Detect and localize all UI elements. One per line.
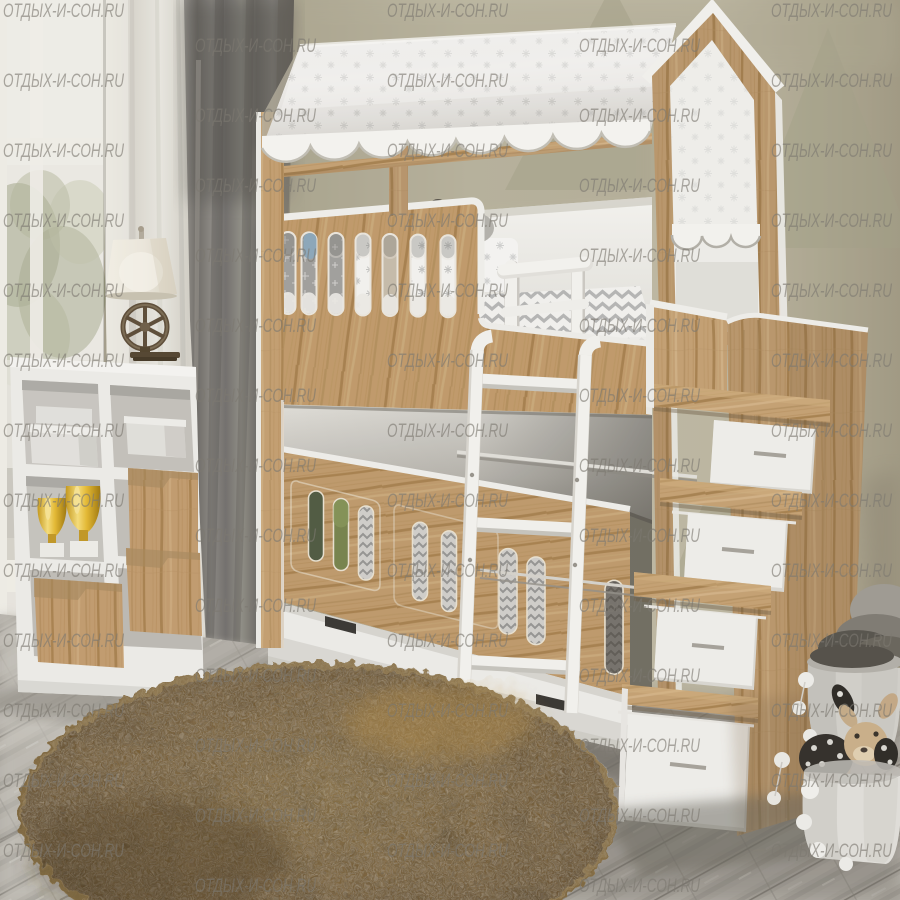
svg-text:ОТДЫХ-И-СОН.RU: ОТДЫХ-И-СОН.RU (3, 701, 124, 722)
svg-text:ОТДЫХ-И-СОН.RU: ОТДЫХ-И-СОН.RU (3, 841, 124, 862)
svg-text:ОТДЫХ-И-СОН.RU: ОТДЫХ-И-СОН.RU (387, 281, 508, 302)
svg-text:ОТДЫХ-И-СОН.RU: ОТДЫХ-И-СОН.RU (579, 876, 700, 897)
svg-text:ОТДЫХ-И-СОН.RU: ОТДЫХ-И-СОН.RU (195, 456, 316, 477)
svg-text:ОТДЫХ-И-СОН.RU: ОТДЫХ-И-СОН.RU (3, 211, 124, 232)
svg-text:ОТДЫХ-И-СОН.RU: ОТДЫХ-И-СОН.RU (579, 456, 700, 477)
svg-text:ОТДЫХ-И-СОН.RU: ОТДЫХ-И-СОН.RU (3, 421, 124, 442)
svg-text:ОТДЫХ-И-СОН.RU: ОТДЫХ-И-СОН.RU (195, 36, 316, 57)
svg-text:ОТДЫХ-И-СОН.RU: ОТДЫХ-И-СОН.RU (3, 141, 124, 162)
svg-text:ОТДЫХ-И-СОН.RU: ОТДЫХ-И-СОН.RU (771, 71, 892, 92)
svg-text:ОТДЫХ-И-СОН.RU: ОТДЫХ-И-СОН.RU (579, 386, 700, 407)
svg-text:ОТДЫХ-И-СОН.RU: ОТДЫХ-И-СОН.RU (387, 561, 508, 582)
svg-text:ОТДЫХ-И-СОН.RU: ОТДЫХ-И-СОН.RU (579, 596, 700, 617)
svg-text:ОТДЫХ-И-СОН.RU: ОТДЫХ-И-СОН.RU (771, 491, 892, 512)
svg-text:ОТДЫХ-И-СОН.RU: ОТДЫХ-И-СОН.RU (771, 631, 892, 652)
svg-text:ОТДЫХ-И-СОН.RU: ОТДЫХ-И-СОН.RU (771, 1, 892, 22)
svg-text:ОТДЫХ-И-СОН.RU: ОТДЫХ-И-СОН.RU (195, 106, 316, 127)
svg-text:ОТДЫХ-И-СОН.RU: ОТДЫХ-И-СОН.RU (3, 561, 124, 582)
svg-text:ОТДЫХ-И-СОН.RU: ОТДЫХ-И-СОН.RU (771, 561, 892, 582)
svg-text:ОТДЫХ-И-СОН.RU: ОТДЫХ-И-СОН.RU (3, 1, 124, 22)
svg-text:ОТДЫХ-И-СОН.RU: ОТДЫХ-И-СОН.RU (3, 771, 124, 792)
svg-text:ОТДЫХ-И-СОН.RU: ОТДЫХ-И-СОН.RU (3, 71, 124, 92)
svg-text:ОТДЫХ-И-СОН.RU: ОТДЫХ-И-СОН.RU (579, 526, 700, 547)
svg-text:ОТДЫХ-И-СОН.RU: ОТДЫХ-И-СОН.RU (387, 1, 508, 22)
svg-text:ОТДЫХ-И-СОН.RU: ОТДЫХ-И-СОН.RU (579, 36, 700, 57)
svg-text:ОТДЫХ-И-СОН.RU: ОТДЫХ-И-СОН.RU (579, 246, 700, 267)
svg-text:ОТДЫХ-И-СОН.RU: ОТДЫХ-И-СОН.RU (195, 316, 316, 337)
svg-text:ОТДЫХ-И-СОН.RU: ОТДЫХ-И-СОН.RU (387, 631, 508, 652)
svg-text:ОТДЫХ-И-СОН.RU: ОТДЫХ-И-СОН.RU (195, 526, 316, 547)
svg-text:ОТДЫХ-И-СОН.RU: ОТДЫХ-И-СОН.RU (387, 491, 508, 512)
svg-text:ОТДЫХ-И-СОН.RU: ОТДЫХ-И-СОН.RU (195, 246, 316, 267)
svg-text:ОТДЫХ-И-СОН.RU: ОТДЫХ-И-СОН.RU (579, 316, 700, 337)
svg-text:ОТДЫХ-И-СОН.RU: ОТДЫХ-И-СОН.RU (195, 736, 316, 757)
svg-text:ОТДЫХ-И-СОН.RU: ОТДЫХ-И-СОН.RU (387, 351, 508, 372)
svg-text:ОТДЫХ-И-СОН.RU: ОТДЫХ-И-СОН.RU (771, 141, 892, 162)
svg-text:ОТДЫХ-И-СОН.RU: ОТДЫХ-И-СОН.RU (579, 736, 700, 757)
svg-text:ОТДЫХ-И-СОН.RU: ОТДЫХ-И-СОН.RU (387, 421, 508, 442)
svg-text:ОТДЫХ-И-СОН.RU: ОТДЫХ-И-СОН.RU (387, 141, 508, 162)
svg-text:ОТДЫХ-И-СОН.RU: ОТДЫХ-И-СОН.RU (195, 666, 316, 687)
svg-text:ОТДЫХ-И-СОН.RU: ОТДЫХ-И-СОН.RU (3, 631, 124, 652)
svg-text:ОТДЫХ-И-СОН.RU: ОТДЫХ-И-СОН.RU (771, 211, 892, 232)
svg-text:ОТДЫХ-И-СОН.RU: ОТДЫХ-И-СОН.RU (195, 596, 316, 617)
svg-text:ОТДЫХ-И-СОН.RU: ОТДЫХ-И-СОН.RU (771, 351, 892, 372)
svg-text:ОТДЫХ-И-СОН.RU: ОТДЫХ-И-СОН.RU (387, 701, 508, 722)
svg-text:ОТДЫХ-И-СОН.RU: ОТДЫХ-И-СОН.RU (771, 281, 892, 302)
svg-text:ОТДЫХ-И-СОН.RU: ОТДЫХ-И-СОН.RU (3, 281, 124, 302)
svg-text:ОТДЫХ-И-СОН.RU: ОТДЫХ-И-СОН.RU (387, 771, 508, 792)
svg-text:ОТДЫХ-И-СОН.RU: ОТДЫХ-И-СОН.RU (387, 71, 508, 92)
svg-text:ОТДЫХ-И-СОН.RU: ОТДЫХ-И-СОН.RU (771, 771, 892, 792)
svg-text:ОТДЫХ-И-СОН.RU: ОТДЫХ-И-СОН.RU (579, 176, 700, 197)
svg-text:ОТДЫХ-И-СОН.RU: ОТДЫХ-И-СОН.RU (195, 806, 316, 827)
svg-text:ОТДЫХ-И-СОН.RU: ОТДЫХ-И-СОН.RU (579, 106, 700, 127)
svg-text:ОТДЫХ-И-СОН.RU: ОТДЫХ-И-СОН.RU (387, 841, 508, 862)
svg-text:ОТДЫХ-И-СОН.RU: ОТДЫХ-И-СОН.RU (579, 666, 700, 687)
svg-text:ОТДЫХ-И-СОН.RU: ОТДЫХ-И-СОН.RU (771, 841, 892, 862)
svg-text:ОТДЫХ-И-СОН.RU: ОТДЫХ-И-СОН.RU (3, 351, 124, 372)
svg-text:ОТДЫХ-И-СОН.RU: ОТДЫХ-И-СОН.RU (3, 491, 124, 512)
svg-text:ОТДЫХ-И-СОН.RU: ОТДЫХ-И-СОН.RU (195, 876, 316, 897)
svg-text:ОТДЫХ-И-СОН.RU: ОТДЫХ-И-СОН.RU (195, 176, 316, 197)
svg-text:ОТДЫХ-И-СОН.RU: ОТДЫХ-И-СОН.RU (579, 806, 700, 827)
svg-text:ОТДЫХ-И-СОН.RU: ОТДЫХ-И-СОН.RU (195, 386, 316, 407)
svg-text:ОТДЫХ-И-СОН.RU: ОТДЫХ-И-СОН.RU (387, 211, 508, 232)
svg-text:ОТДЫХ-И-СОН.RU: ОТДЫХ-И-СОН.RU (771, 701, 892, 722)
svg-text:ОТДЫХ-И-СОН.RU: ОТДЫХ-И-СОН.RU (771, 421, 892, 442)
